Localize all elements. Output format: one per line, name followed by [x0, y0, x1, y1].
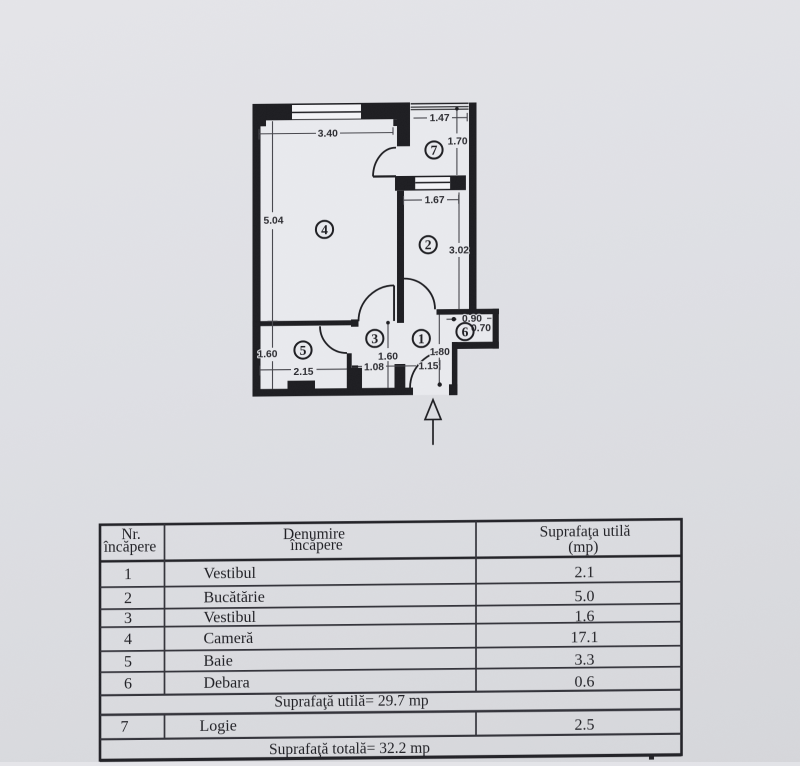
svg-text:3: 3 — [124, 610, 132, 627]
svg-text:1.80: 1.80 — [430, 347, 450, 358]
svg-text:7: 7 — [431, 143, 438, 158]
svg-text:Suprafaţă totală= 32.2 mp: Suprafaţă totală= 32.2 mp — [269, 740, 430, 759]
svg-text:Debara: Debara — [204, 674, 250, 691]
svg-text:(mp): (mp) — [568, 538, 598, 555]
svg-text:3.40: 3.40 — [318, 129, 338, 140]
svg-text:1.47: 1.47 — [430, 113, 450, 124]
svg-text:2.1: 2.1 — [575, 564, 595, 581]
svg-text:6: 6 — [462, 324, 469, 339]
svg-text:Suprafaţă utilă= 29.7 mp: Suprafaţă utilă= 29.7 mp — [274, 692, 428, 710]
svg-text:Vestibul: Vestibul — [204, 565, 257, 583]
svg-text:1: 1 — [124, 566, 132, 583]
svg-text:0.6: 0.6 — [575, 674, 595, 691]
svg-text:Cameră: Cameră — [204, 630, 254, 647]
svg-text:5.0: 5.0 — [575, 588, 595, 605]
svg-text:2: 2 — [425, 237, 432, 252]
svg-text:5.04: 5.04 — [263, 216, 283, 227]
svg-text:3.02: 3.02 — [449, 245, 469, 256]
svg-text:Logie: Logie — [200, 718, 237, 735]
svg-text:3.3: 3.3 — [575, 652, 595, 669]
svg-text:5: 5 — [300, 343, 307, 358]
svg-text:1.67: 1.67 — [425, 195, 445, 206]
svg-text:2.15: 2.15 — [293, 367, 313, 378]
svg-text:1: 1 — [418, 331, 425, 346]
svg-text:încăpere: încăpere — [289, 536, 343, 554]
svg-text:17.1: 17.1 — [571, 629, 599, 646]
svg-text:6: 6 — [124, 675, 132, 692]
svg-text:1.60: 1.60 — [257, 349, 277, 360]
svg-text:2: 2 — [124, 590, 132, 607]
svg-text:2.5: 2.5 — [575, 717, 595, 734]
svg-text:1.60: 1.60 — [378, 351, 398, 362]
svg-text:7: 7 — [121, 719, 129, 736]
svg-text:1.08: 1.08 — [364, 362, 384, 373]
svg-text:încăpere: încăpere — [103, 538, 157, 556]
svg-text:Baie: Baie — [204, 653, 233, 670]
svg-text:5: 5 — [124, 653, 132, 670]
svg-text:3: 3 — [371, 331, 378, 346]
svg-text:4: 4 — [124, 631, 132, 648]
svg-text:1.15: 1.15 — [418, 361, 438, 372]
svg-text:Vestibul: Vestibul — [204, 609, 257, 627]
svg-text:4: 4 — [321, 222, 328, 237]
svg-text:1.6: 1.6 — [575, 608, 595, 625]
svg-text:Bucătărie: Bucătărie — [204, 589, 265, 607]
svg-text:1.70: 1.70 — [448, 136, 468, 147]
